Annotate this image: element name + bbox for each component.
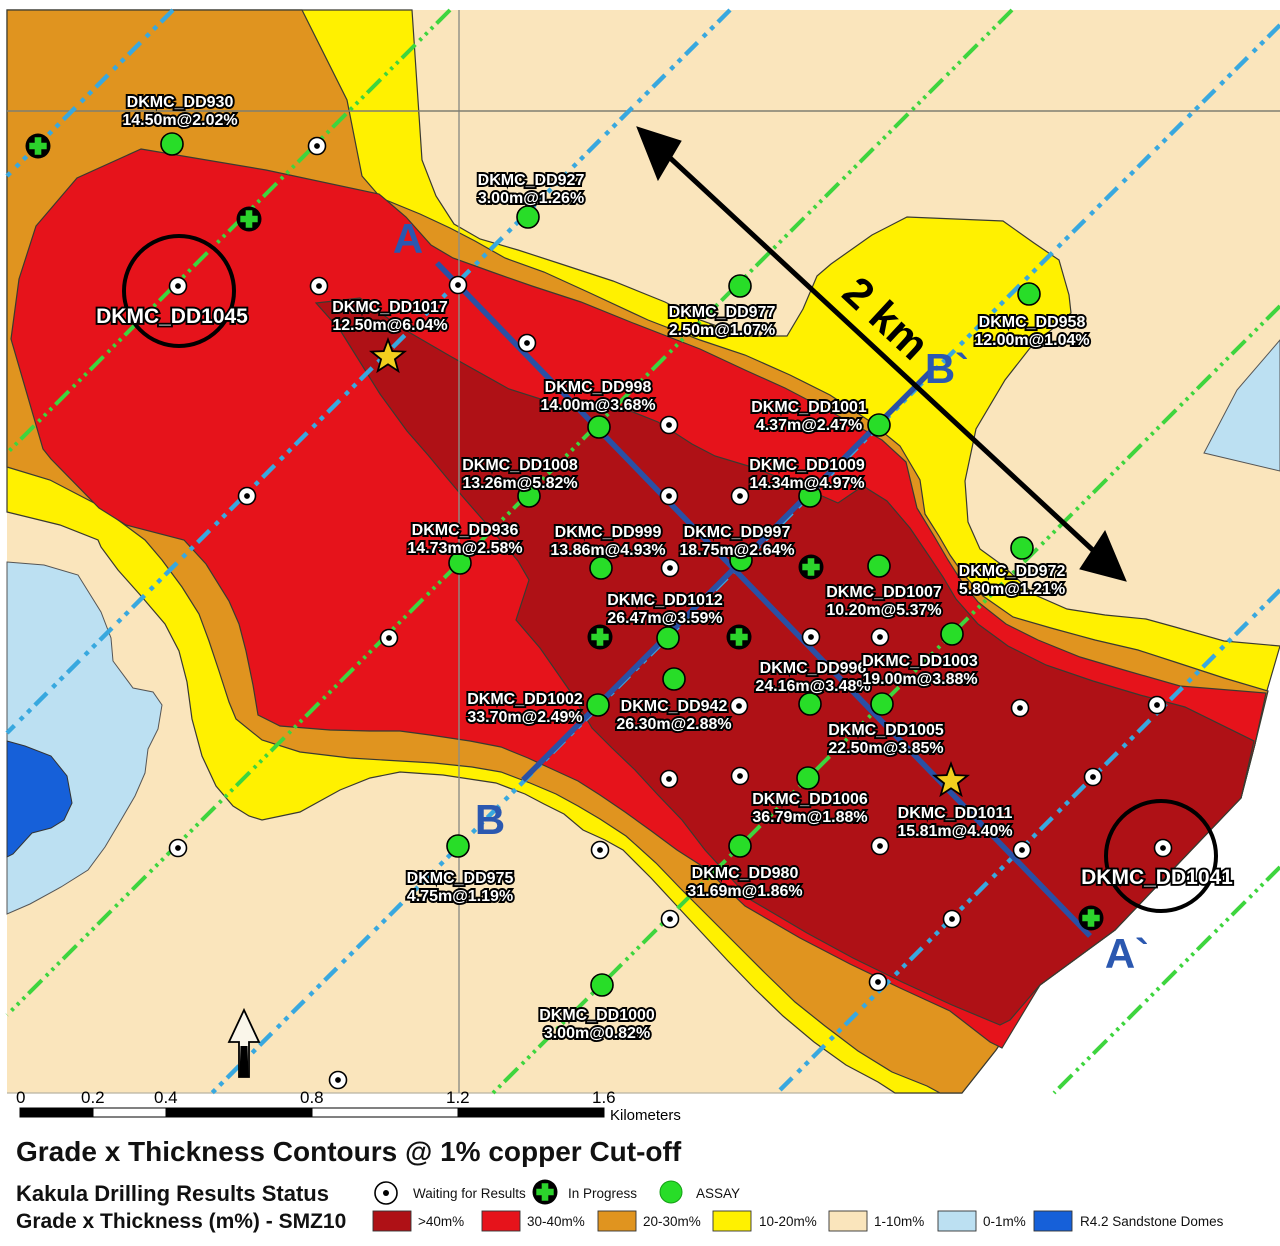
svg-text:4.37m@2.47%: 4.37m@2.47% bbox=[756, 417, 862, 434]
svg-text:15.81m@4.40%: 15.81m@4.40% bbox=[897, 823, 1012, 840]
svg-text:B: B bbox=[475, 796, 505, 843]
svg-text:DKMC_DD936: DKMC_DD936 bbox=[412, 522, 519, 539]
svg-text:3.00m@0.82%: 3.00m@0.82% bbox=[544, 1025, 650, 1042]
svg-text:13.26m@5.82%: 13.26m@5.82% bbox=[462, 475, 577, 492]
svg-text:DKMC_DD958: DKMC_DD958 bbox=[979, 314, 1086, 331]
svg-text:DKMC_DD1006: DKMC_DD1006 bbox=[752, 791, 868, 808]
svg-text:12.00m@1.04%: 12.00m@1.04% bbox=[974, 332, 1089, 349]
svg-text:DKMC_DD1017: DKMC_DD1017 bbox=[332, 299, 448, 316]
svg-text:0.4: 0.4 bbox=[154, 1088, 178, 1107]
svg-text:22.50m@3.85%: 22.50m@3.85% bbox=[828, 740, 943, 757]
svg-text:10-20m%: 10-20m% bbox=[759, 1214, 817, 1229]
svg-text:DKMC_DD930: DKMC_DD930 bbox=[127, 94, 234, 111]
svg-text:0: 0 bbox=[16, 1088, 25, 1107]
svg-text:ASSAY: ASSAY bbox=[696, 1186, 740, 1201]
svg-text:DKMC_DD1008: DKMC_DD1008 bbox=[462, 457, 578, 474]
svg-text:19.00m@3.88%: 19.00m@3.88% bbox=[862, 671, 977, 688]
svg-text:Kakula Drilling Results Status: Kakula Drilling Results Status bbox=[16, 1181, 329, 1206]
svg-text:A: A bbox=[393, 215, 423, 262]
svg-text:DKMC_DD1009: DKMC_DD1009 bbox=[749, 457, 865, 474]
svg-text:DKMC_DD1041: DKMC_DD1041 bbox=[1081, 866, 1233, 889]
svg-text:14.50m@2.02%: 14.50m@2.02% bbox=[122, 112, 237, 129]
svg-text:10.20m@5.37%: 10.20m@5.37% bbox=[826, 602, 941, 619]
svg-text:31.69m@1.86%: 31.69m@1.86% bbox=[687, 883, 802, 900]
svg-text:14.73m@2.58%: 14.73m@2.58% bbox=[407, 540, 522, 557]
svg-text:Kilometers: Kilometers bbox=[610, 1107, 681, 1124]
svg-text:1.6: 1.6 bbox=[592, 1088, 616, 1107]
svg-text:DKMC_DD1007: DKMC_DD1007 bbox=[826, 584, 942, 601]
svg-text:12.50m@6.04%: 12.50m@6.04% bbox=[332, 317, 447, 334]
svg-text:>40m%: >40m% bbox=[418, 1214, 464, 1229]
svg-text:20-30m%: 20-30m% bbox=[643, 1214, 701, 1229]
svg-text:1-10m%: 1-10m% bbox=[874, 1214, 924, 1229]
svg-text:B`: B` bbox=[925, 345, 969, 392]
svg-text:DKMC_DD972: DKMC_DD972 bbox=[959, 563, 1066, 580]
svg-text:In Progress: In Progress bbox=[568, 1186, 637, 1201]
svg-text:DKMC_DD1001: DKMC_DD1001 bbox=[751, 399, 867, 416]
svg-text:18.75m@2.64%: 18.75m@2.64% bbox=[679, 542, 794, 559]
svg-text:DKMC_DD1045: DKMC_DD1045 bbox=[96, 305, 248, 328]
svg-text:24.16m@3.48%: 24.16m@3.48% bbox=[755, 678, 870, 695]
svg-text:14.34m@4.97%: 14.34m@4.97% bbox=[749, 475, 864, 492]
svg-text:DKMC_DD977: DKMC_DD977 bbox=[669, 304, 776, 321]
svg-text:4.75m@1.19%: 4.75m@1.19% bbox=[407, 888, 513, 905]
svg-text:Waiting for Results: Waiting for Results bbox=[413, 1186, 526, 1201]
svg-text:Grade x Thickness (m%) - SMZ10: Grade x Thickness (m%) - SMZ10 bbox=[16, 1210, 346, 1233]
svg-text:DKMC_DD998: DKMC_DD998 bbox=[545, 379, 652, 396]
svg-text:26.47m@3.59%: 26.47m@3.59% bbox=[607, 610, 722, 627]
svg-text:DKMC_DD1012: DKMC_DD1012 bbox=[607, 592, 723, 609]
svg-text:30-40m%: 30-40m% bbox=[527, 1214, 585, 1229]
svg-text:R4.2 Sandstone Domes: R4.2 Sandstone Domes bbox=[1080, 1214, 1224, 1229]
svg-text:36.79m@1.88%: 36.79m@1.88% bbox=[752, 809, 867, 826]
svg-text:DKMC_DD997: DKMC_DD997 bbox=[684, 524, 791, 541]
svg-text:26.30m@2.88%: 26.30m@2.88% bbox=[616, 716, 731, 733]
svg-text:14.00m@3.68%: 14.00m@3.68% bbox=[540, 397, 655, 414]
svg-text:DKMC_DD1011: DKMC_DD1011 bbox=[898, 805, 1013, 822]
svg-text:DKMC_DD975: DKMC_DD975 bbox=[407, 870, 514, 887]
svg-text:1.2: 1.2 bbox=[446, 1088, 470, 1107]
svg-text:DKMC_DD999: DKMC_DD999 bbox=[555, 524, 662, 541]
svg-text:A`: A` bbox=[1105, 930, 1149, 977]
svg-text:3.00m@1.26%: 3.00m@1.26% bbox=[478, 190, 584, 207]
svg-text:0.8: 0.8 bbox=[300, 1088, 324, 1107]
svg-text:DKMC_DD1002: DKMC_DD1002 bbox=[467, 691, 583, 708]
svg-text:DKMC_DD942: DKMC_DD942 bbox=[621, 698, 728, 715]
svg-text:0.2: 0.2 bbox=[81, 1088, 105, 1107]
svg-text:DKMC_DD1005: DKMC_DD1005 bbox=[828, 722, 944, 739]
svg-text:0-1m%: 0-1m% bbox=[983, 1214, 1026, 1229]
svg-text:DKMC_DD1003: DKMC_DD1003 bbox=[862, 653, 978, 670]
svg-text:33.70m@2.49%: 33.70m@2.49% bbox=[467, 709, 582, 726]
svg-text:DKMC_DD996: DKMC_DD996 bbox=[760, 660, 867, 677]
svg-text:2.50m@1.07%: 2.50m@1.07% bbox=[669, 322, 775, 339]
svg-text:DKMC_DD927: DKMC_DD927 bbox=[478, 172, 585, 189]
svg-text:5.80m@1.21%: 5.80m@1.21% bbox=[959, 581, 1065, 598]
svg-text:DKMC_DD980: DKMC_DD980 bbox=[692, 865, 799, 882]
svg-text:13.86m@4.93%: 13.86m@4.93% bbox=[550, 542, 665, 559]
svg-text:Grade x Thickness Contours @ 1: Grade x Thickness Contours @ 1% copper C… bbox=[16, 1136, 682, 1167]
svg-text:DKMC_DD1000: DKMC_DD1000 bbox=[539, 1007, 655, 1024]
